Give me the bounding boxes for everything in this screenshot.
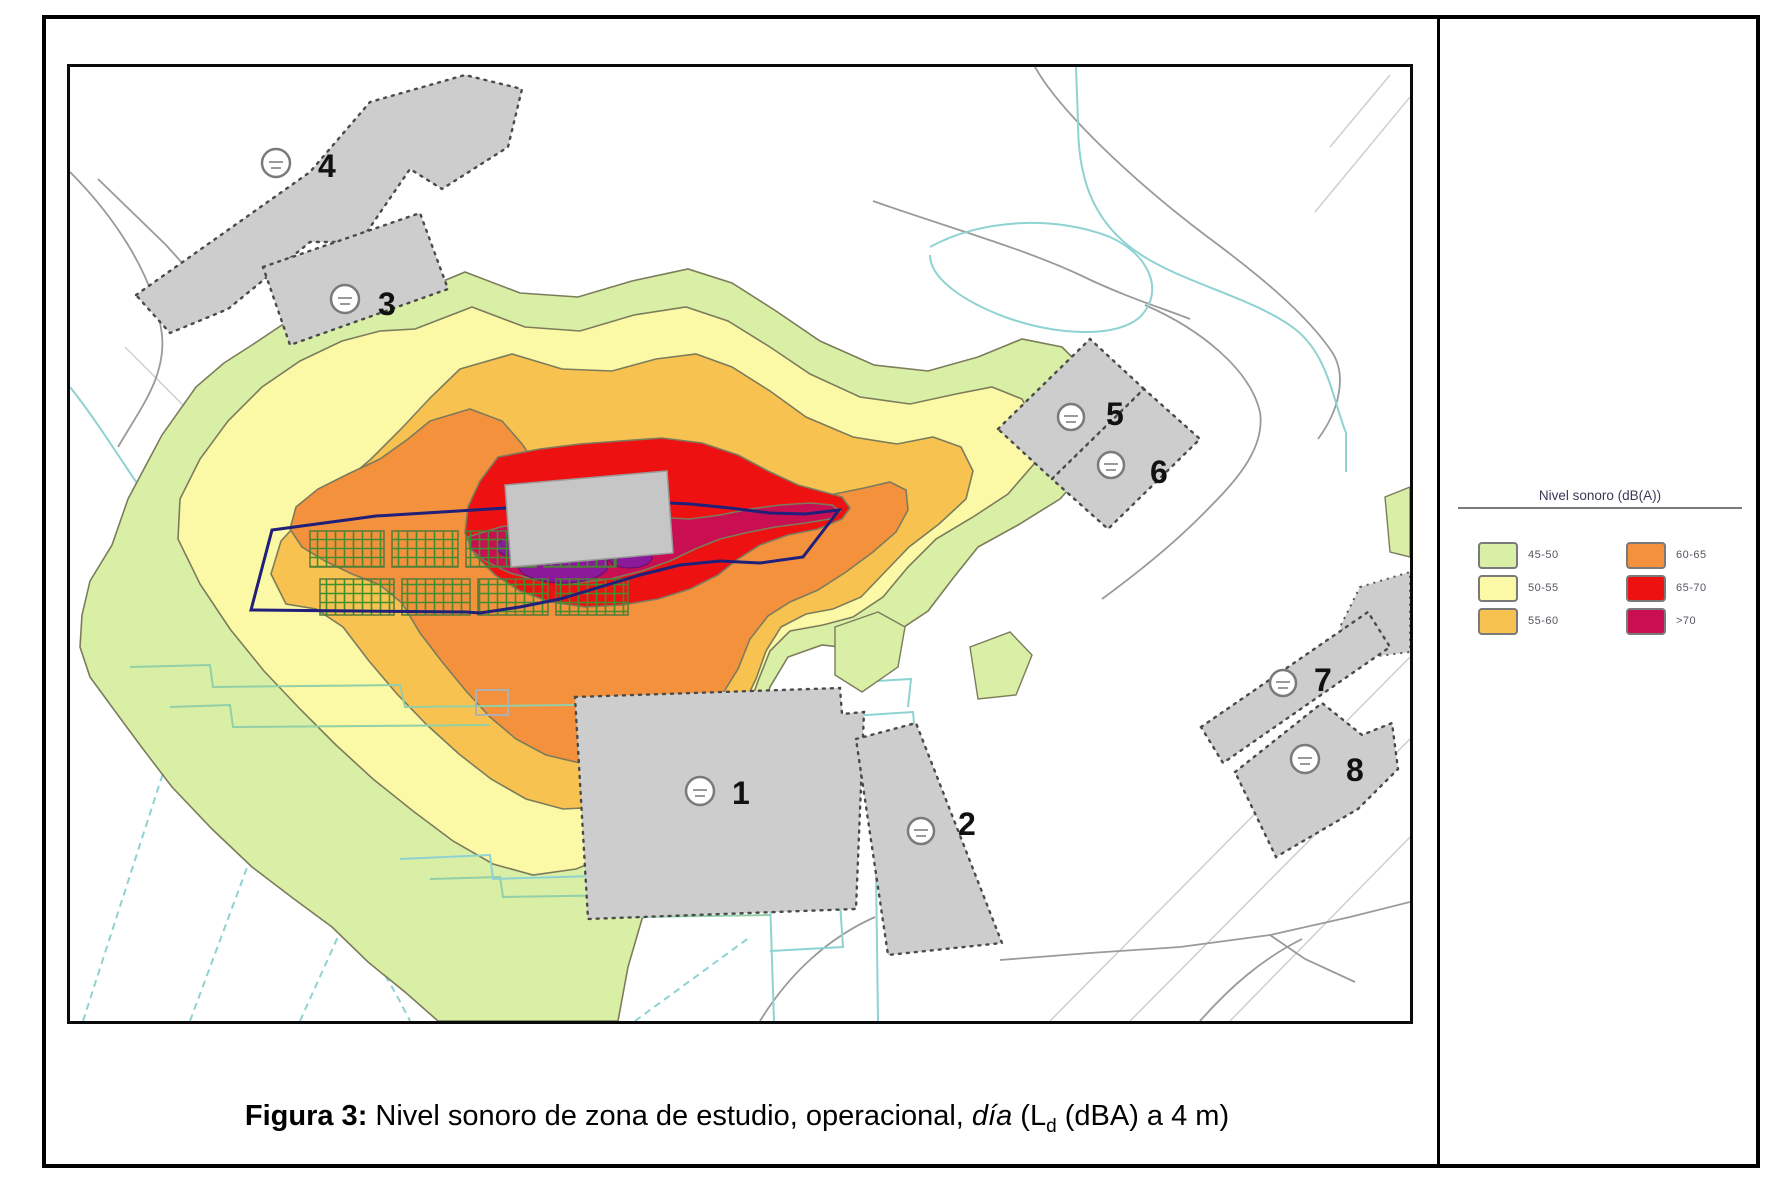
building-label-8: 8	[1346, 752, 1364, 788]
caption-text: Nivel sonoro de zona de estudio, operaci…	[367, 1100, 972, 1132]
caption-text-after: (L	[1012, 1100, 1046, 1132]
building-label-3: 3	[378, 286, 396, 322]
building-symbol-icon	[1058, 404, 1084, 430]
legend-label: 45-50	[1528, 549, 1559, 561]
legend-label: 55-60	[1528, 615, 1559, 627]
legend-grid: 45-50 50-55 55-60 60-65 65-70 >70	[1452, 539, 1748, 637]
building-label-5: 5	[1106, 396, 1124, 432]
building-symbol-icon	[331, 285, 359, 313]
legend-item: 60-65	[1600, 539, 1748, 571]
building-label-2: 2	[958, 806, 976, 842]
legend-item: 50-55	[1452, 572, 1600, 604]
caption-italic-word: día	[972, 1100, 1012, 1132]
legend-label: 60-65	[1676, 549, 1707, 561]
legend-label: >70	[1676, 615, 1696, 627]
building-symbol-icon	[1098, 452, 1124, 478]
legend-swatch-55-60	[1479, 609, 1517, 634]
figure-caption: Figura 3: Nivel sonoro de zona de estudi…	[67, 1100, 1407, 1138]
legend-swatch-45-50	[1479, 543, 1517, 568]
caption-subscript: d	[1046, 1116, 1057, 1137]
legend-swatch-over-70	[1627, 609, 1665, 634]
legend-label: 65-70	[1676, 582, 1707, 594]
panel-field	[392, 531, 458, 567]
building-symbol-icon	[1270, 670, 1296, 696]
legend-title: Nivel sonoro (dB(A))	[1452, 488, 1748, 507]
building-label-7: 7	[1314, 662, 1332, 698]
panel-field	[310, 531, 384, 567]
legend-item: 55-60	[1452, 605, 1600, 637]
legend-swatch-60-65	[1627, 543, 1665, 568]
building-1-shape	[575, 688, 864, 919]
building-symbol-icon	[686, 777, 714, 805]
legend-swatch-50-55	[1479, 576, 1517, 601]
legend-item: 45-50	[1452, 539, 1600, 571]
panel-field	[478, 579, 548, 615]
source-building	[505, 471, 673, 567]
building-label-4: 4	[318, 148, 336, 184]
building-symbol-icon	[262, 149, 290, 177]
legend-item: 65-70	[1600, 572, 1748, 604]
noise-map: 1 2 3 4 5 6 7 8	[70, 67, 1410, 1021]
caption-text-end: (dBA) a 4 m)	[1057, 1100, 1229, 1132]
legend-panel: Nivel sonoro (dB(A)) 45-50 50-55 55-60 6…	[1452, 488, 1748, 637]
legend-label: 50-55	[1528, 582, 1559, 594]
building-symbol-icon	[908, 818, 934, 844]
legend-item: >70	[1600, 605, 1748, 637]
panel-field	[402, 579, 470, 615]
legend-swatch-65-70	[1627, 576, 1665, 601]
building-symbol-icon	[1291, 745, 1319, 773]
noise-map-frame: 1 2 3 4 5 6 7 8	[67, 64, 1413, 1024]
building-label-1: 1	[732, 775, 750, 811]
legend-title-rule	[1458, 507, 1742, 509]
caption-figure-number: Figura 3:	[245, 1100, 367, 1132]
panel-divider	[1437, 15, 1440, 1164]
building-label-6: 6	[1150, 454, 1168, 490]
